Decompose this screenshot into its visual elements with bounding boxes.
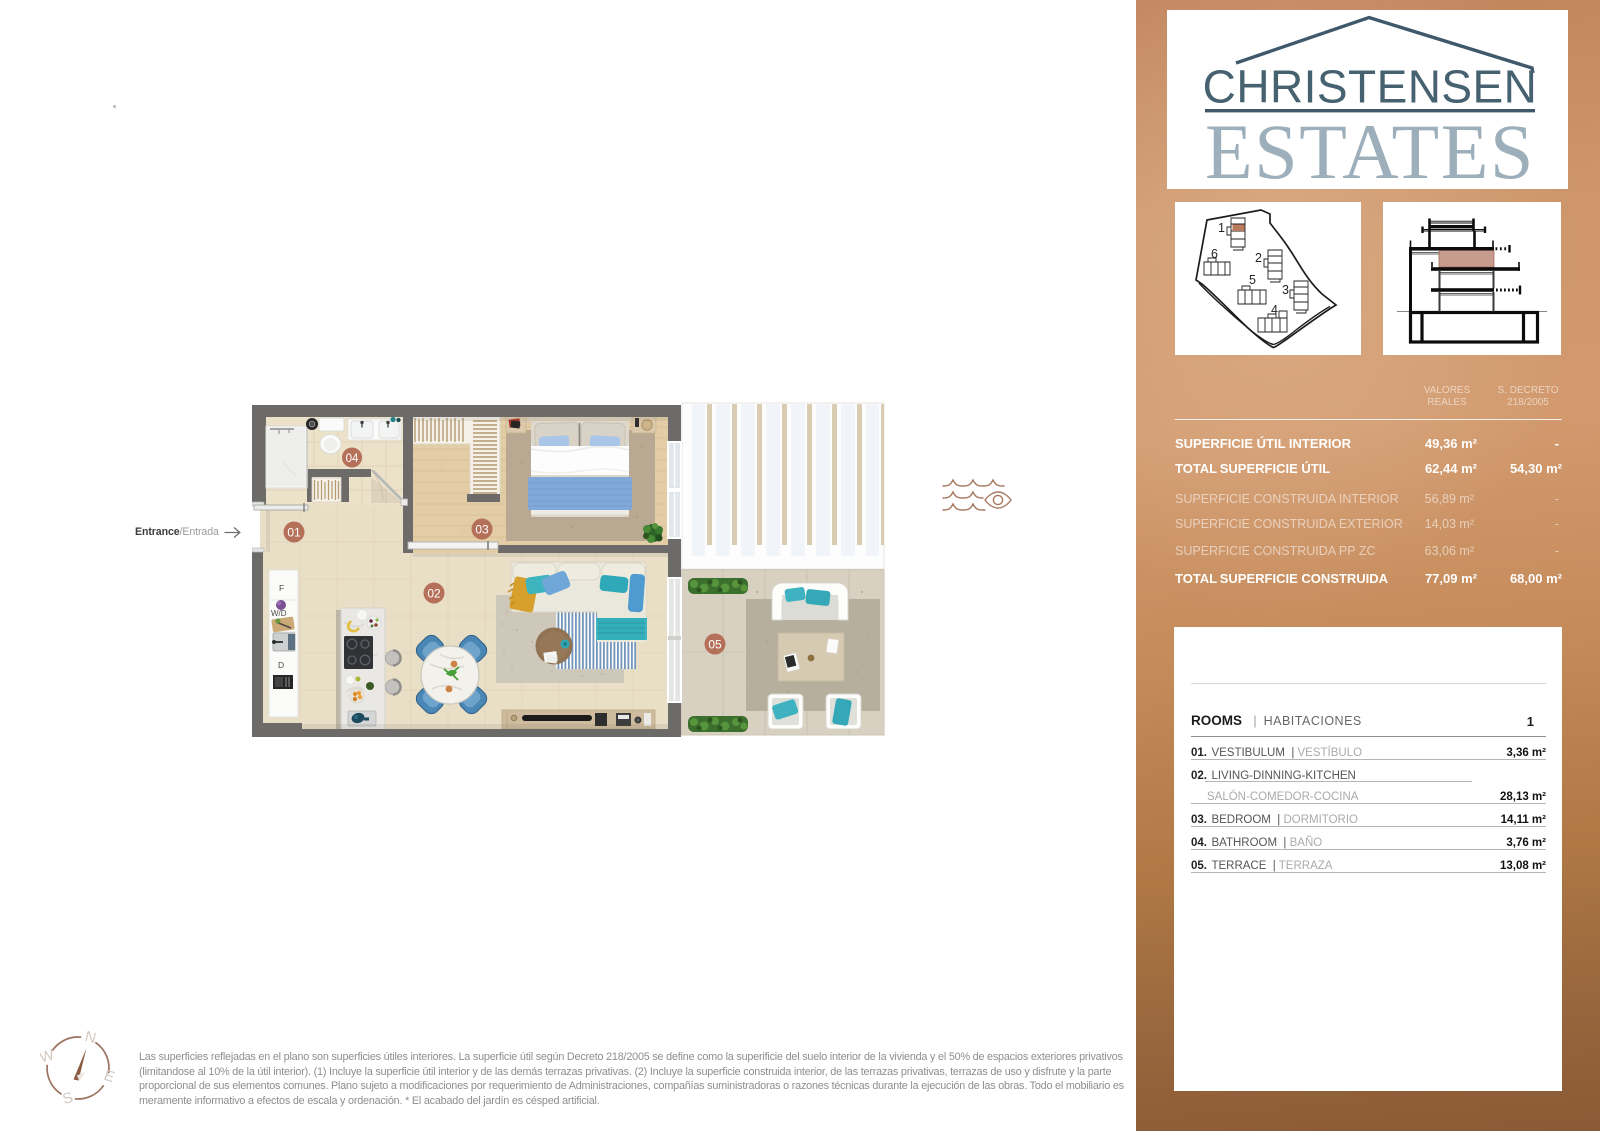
svg-text:ESTATES: ESTATES <box>1205 108 1535 189</box>
svg-text:2: 2 <box>1255 251 1262 265</box>
svg-text:D: D <box>278 660 284 670</box>
svg-text:W/D: W/D <box>271 609 287 618</box>
svg-text:F: F <box>279 583 284 593</box>
svg-text:4: 4 <box>1271 303 1278 317</box>
svg-text:N: N <box>83 1030 98 1047</box>
svg-text:05: 05 <box>708 638 722 652</box>
svg-text:CHRISTENSEN: CHRISTENSEN <box>1203 61 1538 113</box>
svg-text:02: 02 <box>427 587 441 601</box>
svg-text:5: 5 <box>1249 273 1256 287</box>
svg-text:04: 04 <box>346 453 359 465</box>
svg-text:03: 03 <box>475 523 489 537</box>
svg-text:01: 01 <box>287 526 301 540</box>
svg-text:1: 1 <box>1218 221 1225 235</box>
svg-text:3: 3 <box>1282 283 1289 297</box>
svg-text:6: 6 <box>1211 247 1218 261</box>
svg-text:E: E <box>102 1067 117 1086</box>
svg-text:S: S <box>61 1089 75 1108</box>
